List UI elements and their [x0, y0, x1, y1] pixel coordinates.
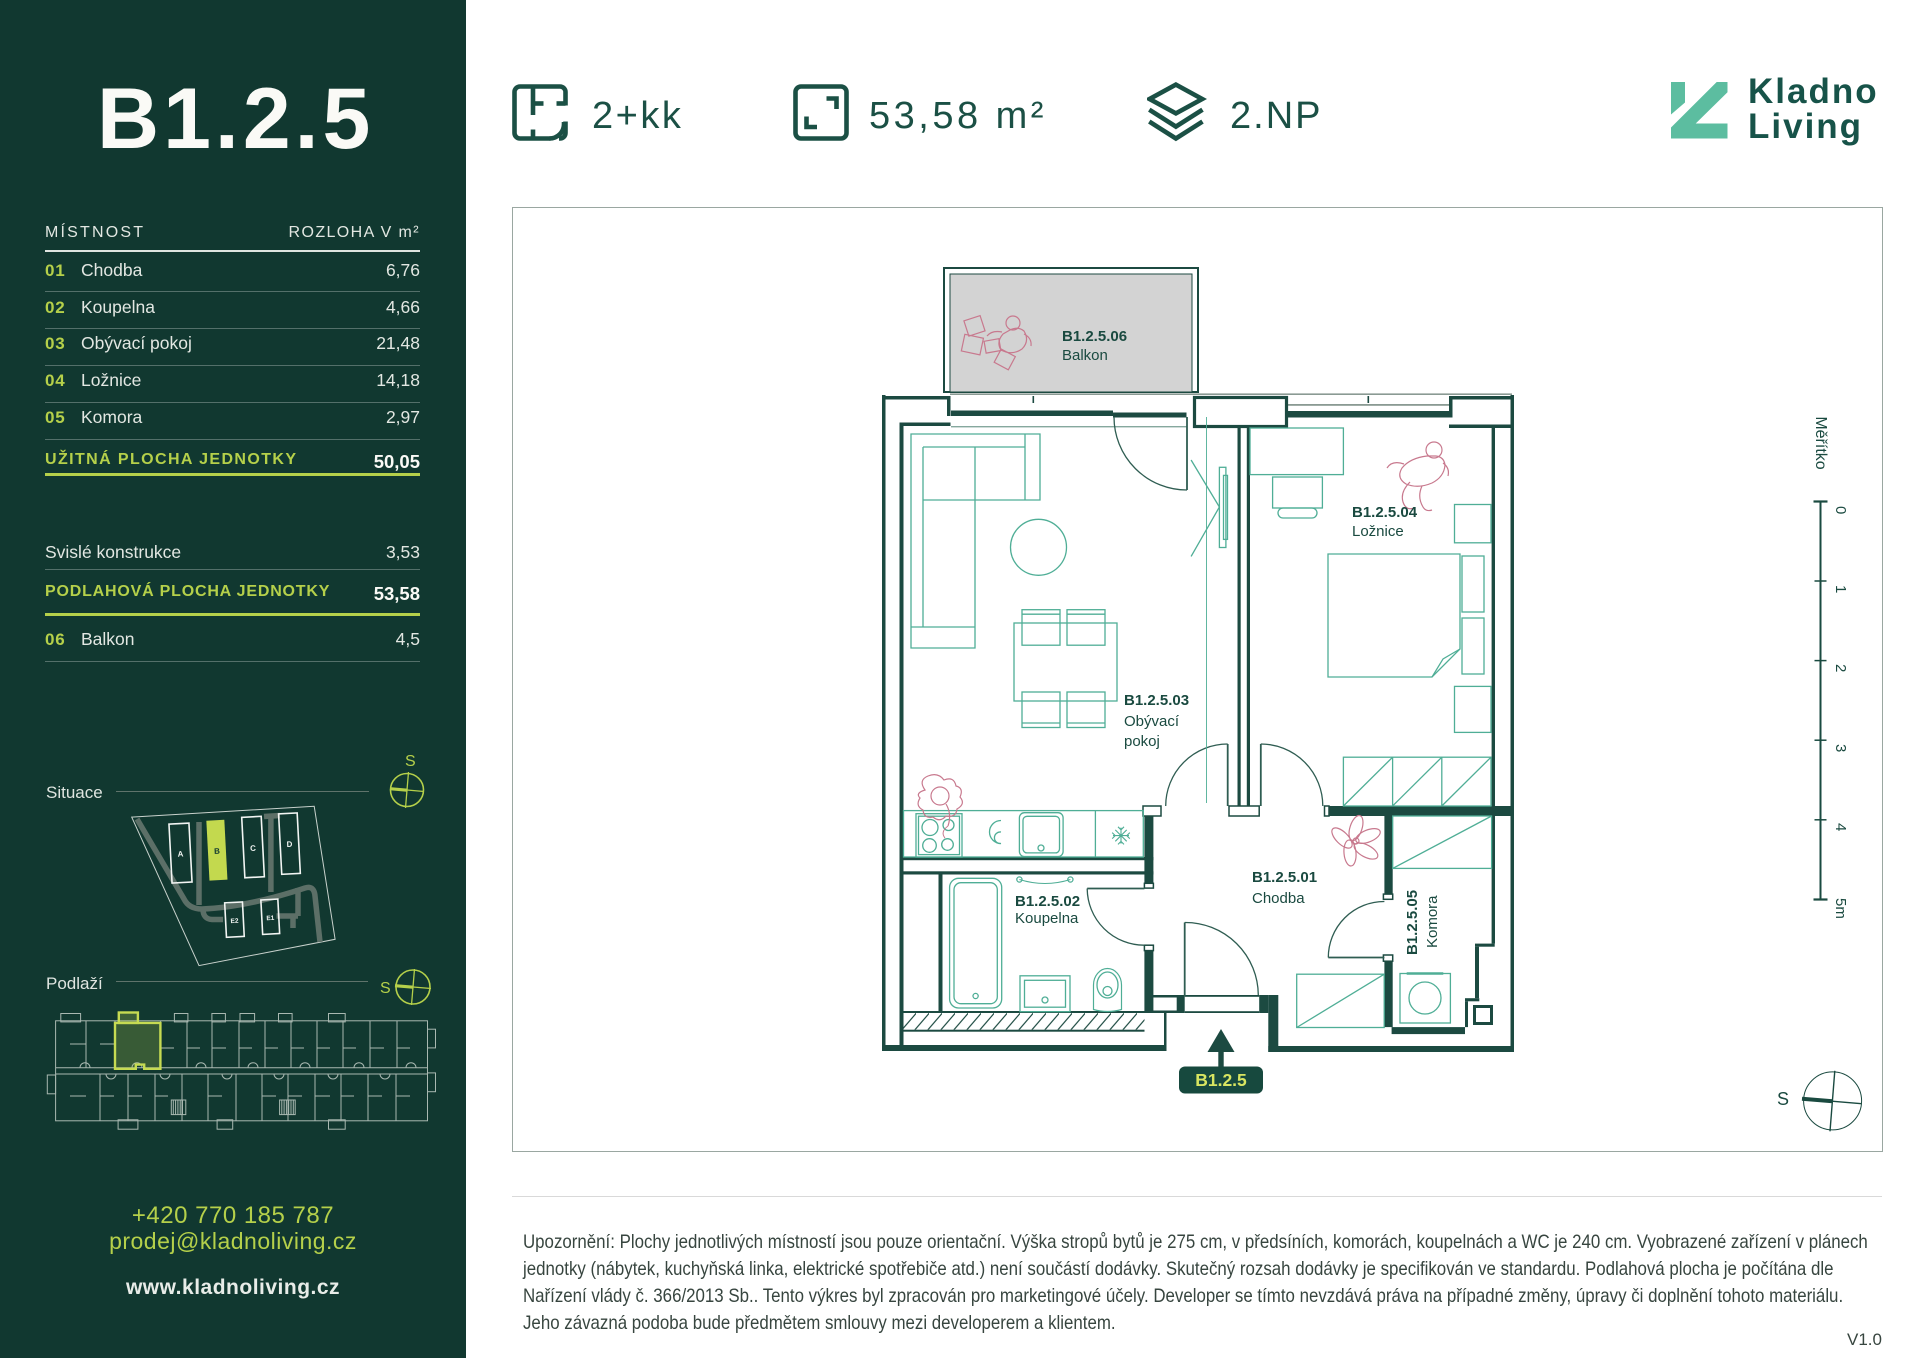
- svg-text:1: 1: [1832, 585, 1849, 593]
- svg-text:3: 3: [1832, 744, 1849, 752]
- svg-text:Balkon: Balkon: [1062, 347, 1108, 364]
- svg-text:B1.2.5.03: B1.2.5.03: [1124, 692, 1189, 709]
- svg-text:B1.2.5.05: B1.2.5.05: [1404, 890, 1421, 955]
- svg-text:S: S: [1777, 1089, 1789, 1109]
- svg-text:B1.2.5.01: B1.2.5.01: [1252, 869, 1317, 886]
- svg-text:B1.2.5.04: B1.2.5.04: [1352, 504, 1418, 521]
- svg-text:Ložnice: Ložnice: [1352, 523, 1404, 540]
- svg-text:4: 4: [1832, 823, 1849, 831]
- svg-text:Komora: Komora: [1424, 895, 1441, 948]
- svg-text:Koupelna: Koupelna: [1015, 910, 1079, 927]
- svg-text:5m: 5m: [1832, 898, 1849, 919]
- svg-text:0: 0: [1832, 506, 1849, 514]
- svg-text:B1.2.5.06: B1.2.5.06: [1062, 328, 1127, 345]
- svg-text:B1.2.5: B1.2.5: [1195, 1070, 1247, 1090]
- svg-text:B1.2.5.02: B1.2.5.02: [1015, 893, 1080, 910]
- svg-text:2: 2: [1832, 664, 1849, 672]
- svg-text:pokoj: pokoj: [1124, 733, 1160, 750]
- svg-text:Měřítko: Měřítko: [1812, 416, 1829, 469]
- svg-text:Obývací: Obývací: [1124, 713, 1180, 730]
- svg-text:Chodba: Chodba: [1252, 890, 1305, 907]
